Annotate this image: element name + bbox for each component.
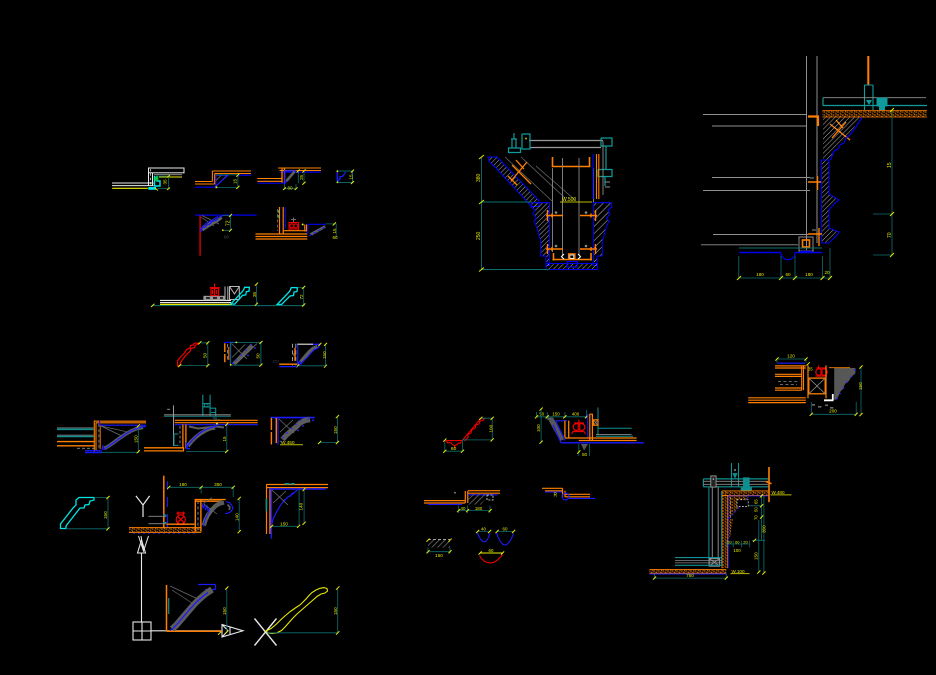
svg-text:60: 60	[489, 548, 494, 553]
svg-text:60: 60	[785, 272, 791, 277]
svg-text:350: 350	[762, 525, 767, 533]
svg-text:180: 180	[756, 272, 764, 277]
svg-text:15: 15	[887, 162, 893, 168]
svg-text:65: 65	[754, 499, 759, 504]
svg-text:35: 35	[163, 179, 168, 185]
svg-text:70: 70	[754, 515, 759, 520]
svg-text:72: 72	[299, 294, 304, 300]
svg-text:40: 40	[461, 506, 466, 511]
svg-text:50: 50	[539, 411, 544, 416]
svg-text:150: 150	[754, 552, 759, 560]
svg-text:20: 20	[824, 270, 830, 275]
svg-text:150: 150	[272, 359, 279, 364]
svg-text:380: 380	[476, 173, 482, 182]
svg-text:15: 15	[332, 228, 337, 234]
svg-text:350: 350	[214, 482, 222, 487]
svg-text:150: 150	[435, 553, 443, 558]
svg-text:15: 15	[222, 436, 227, 442]
svg-text:15: 15	[349, 174, 354, 180]
svg-text:150: 150	[552, 411, 560, 416]
svg-text:150: 150	[280, 521, 288, 526]
svg-text:150: 150	[333, 426, 338, 434]
svg-text:140: 140	[299, 502, 304, 510]
svg-text:R: R	[554, 493, 558, 499]
svg-text:50: 50	[582, 452, 588, 457]
svg-text:60: 60	[503, 527, 508, 532]
svg-text:200: 200	[829, 409, 837, 414]
svg-text:100: 100	[733, 548, 741, 553]
svg-text:150: 150	[333, 607, 338, 615]
svg-text:20: 20	[743, 540, 748, 545]
svg-text:W.100: W.100	[732, 569, 745, 574]
svg-text:180: 180	[475, 506, 483, 511]
svg-text:15: 15	[233, 178, 238, 184]
svg-text:150: 150	[858, 382, 863, 390]
svg-text:25: 25	[299, 174, 304, 180]
svg-text:70: 70	[887, 232, 893, 238]
svg-text:60: 60	[287, 185, 293, 190]
svg-text:150: 150	[322, 351, 327, 359]
svg-text:50: 50	[754, 507, 759, 512]
svg-text:140: 140	[234, 513, 239, 521]
svg-text:100: 100	[536, 424, 541, 432]
svg-text:40: 40	[481, 527, 486, 532]
svg-text:60: 60	[333, 235, 339, 240]
svg-text:400: 400	[572, 411, 580, 416]
svg-text:750: 750	[686, 573, 694, 578]
svg-text:60: 60	[224, 235, 229, 240]
svg-text:150: 150	[134, 435, 139, 443]
svg-text:120: 120	[787, 354, 795, 359]
svg-text:150: 150	[222, 607, 227, 615]
svg-text:35: 35	[808, 367, 813, 372]
svg-text:150: 150	[103, 511, 108, 519]
svg-text:W.480: W.480	[772, 490, 785, 495]
svg-text:60: 60	[451, 446, 457, 452]
svg-text:250: 250	[476, 231, 482, 240]
svg-text:72: 72	[225, 220, 231, 226]
svg-text:180: 180	[805, 272, 813, 277]
svg-text:100: 100	[489, 424, 494, 432]
svg-text:50: 50	[202, 352, 207, 358]
svg-text:180: 180	[179, 482, 187, 487]
svg-text:50: 50	[256, 353, 261, 359]
svg-text:60: 60	[735, 540, 740, 545]
svg-text:35: 35	[252, 291, 257, 297]
svg-text:20: 20	[727, 540, 732, 545]
